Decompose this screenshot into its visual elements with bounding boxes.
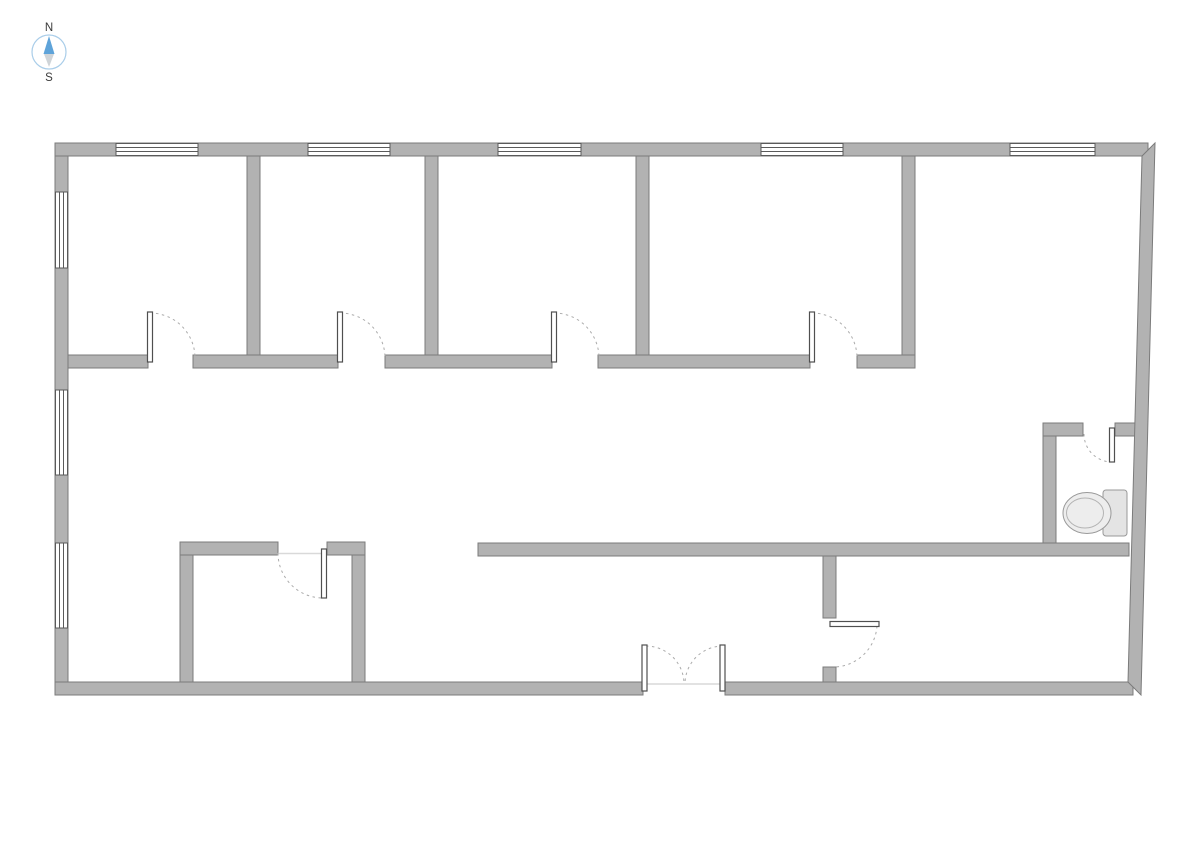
door-leaf-bathroom (1110, 428, 1115, 462)
door-arc-double-right (685, 646, 723, 684)
door-arc-double-left (646, 646, 684, 684)
window-top-5 (1010, 144, 1095, 156)
window-left-2 (56, 390, 68, 475)
window-left-1 (56, 192, 68, 268)
bathroom-top-seg-1 (1043, 423, 1083, 436)
floor-plan: N S (0, 0, 1191, 842)
bottomleft-room-top-seg-2 (327, 542, 365, 555)
partition-room4-room5 (902, 156, 915, 355)
door-arc-bottomleft (278, 553, 323, 598)
door-leaf-bottomleft (322, 549, 327, 598)
window-top-4 (761, 144, 843, 156)
window-top-2 (308, 144, 390, 156)
door-arc-rightroom (834, 626, 877, 667)
door-leaf-double-left (642, 645, 647, 691)
partition-room2-room3 (425, 156, 438, 355)
door-arc-bathroom (1084, 434, 1112, 462)
corridor-wall-seg-2 (193, 355, 338, 368)
door-leaf-room4 (810, 312, 815, 362)
exterior-wall-bottom-right (725, 682, 1133, 695)
door-leaf-room2 (338, 312, 343, 362)
bottomleft-room-wall-right (352, 555, 365, 682)
corridor-wall-seg-3 (385, 355, 552, 368)
partition-room3-room4 (636, 156, 649, 355)
compass: N S (0, 0, 110, 100)
door-leaf-room3 (552, 312, 557, 362)
door-leaf-room1 (148, 312, 153, 362)
door-leaf-double-right (720, 645, 725, 691)
partition-room1-room2 (247, 156, 260, 355)
corridor-wall-seg-1 (68, 355, 148, 368)
exterior-wall-bottom-left (55, 682, 643, 695)
floor-plan-canvas (0, 0, 1191, 842)
exterior-wall-top (55, 143, 1148, 156)
bathroom-wall-left (1043, 423, 1056, 543)
compass-north-label: N (45, 22, 53, 34)
window-top-1 (116, 144, 198, 156)
exterior-wall-right (1128, 143, 1155, 695)
corridor-wall-seg-4 (598, 355, 810, 368)
right-room-wall-lower (823, 667, 836, 682)
central-wall (478, 543, 1129, 556)
door-arc-room3 (554, 313, 599, 358)
bottomleft-room-wall-left (180, 555, 193, 682)
window-top-3 (498, 144, 581, 156)
compass-south-label: S (45, 72, 53, 84)
door-arc-room2 (340, 313, 385, 358)
bottomleft-room-top-seg-1 (180, 542, 278, 555)
door-arc-room4 (812, 313, 857, 358)
door-leaf-rightroom (830, 622, 879, 627)
door-arc-room1 (150, 313, 195, 358)
corridor-wall-seg-5 (857, 355, 915, 368)
window-left-3 (56, 543, 68, 628)
right-room-wall-upper (823, 556, 836, 618)
